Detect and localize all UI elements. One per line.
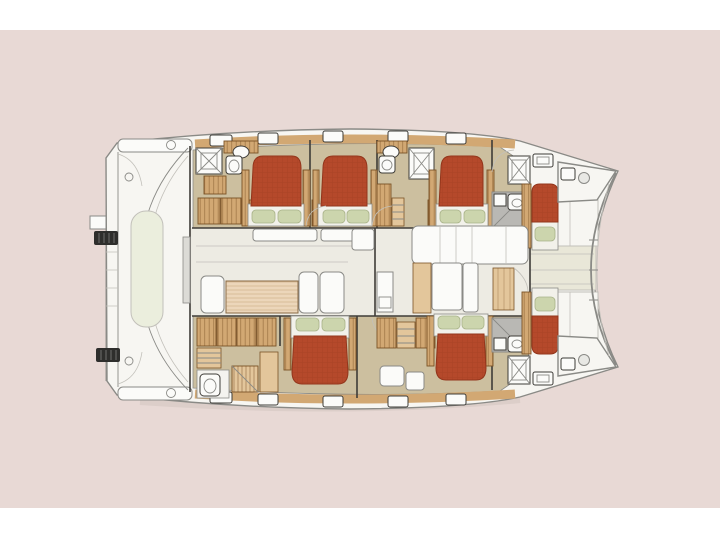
bed-duvet <box>292 336 348 384</box>
port-mid-cabin-bed <box>313 156 377 226</box>
starboard-side-deck-wood <box>195 394 515 399</box>
pillow <box>296 318 319 331</box>
pillow <box>278 210 301 223</box>
bed-rail <box>427 316 434 366</box>
berth-duvet <box>532 184 558 222</box>
bed-duvet <box>436 334 486 380</box>
berth-shelf <box>522 292 531 354</box>
shelf-unit <box>377 184 391 226</box>
cockpit-sliding-door <box>183 237 190 303</box>
galley-wood-counter <box>413 263 431 313</box>
toilet-icon <box>200 374 220 396</box>
galley-counter <box>377 272 393 312</box>
galley-island <box>432 263 462 310</box>
pillow <box>535 227 555 241</box>
galley-cabinet <box>352 229 374 250</box>
pillow <box>252 210 275 223</box>
salon-chaise <box>320 272 344 313</box>
open-shelves <box>397 322 415 348</box>
transom-step-starboard <box>118 387 192 400</box>
starboard-mid-cabin-bed <box>284 316 356 384</box>
companionway-steps <box>197 348 221 368</box>
anchor-hatch <box>561 168 575 180</box>
pillow <box>535 297 555 311</box>
stool <box>406 372 424 390</box>
bed-duvet <box>439 156 483 206</box>
cockpit-lounge-cushion <box>131 211 163 327</box>
pillow <box>462 316 484 329</box>
pillow <box>440 210 461 223</box>
bed-rail <box>349 318 356 370</box>
shower-stall <box>508 156 530 184</box>
pillow <box>323 210 345 223</box>
stern-locker <box>90 216 106 229</box>
anchor-hatch <box>561 358 575 370</box>
seat <box>380 366 404 386</box>
toilet-icon <box>379 156 395 173</box>
deck-hatch <box>533 372 553 385</box>
shower-stall <box>508 356 530 384</box>
deck-hatch <box>533 154 553 167</box>
transom-step-port <box>118 139 192 152</box>
stern-cleat-lower <box>96 348 120 362</box>
porthole-icon <box>579 173 590 184</box>
dinette-bench <box>299 272 318 313</box>
open-shelves <box>392 198 404 226</box>
pillow <box>322 318 345 331</box>
salon-bench-back <box>253 229 317 241</box>
pillow <box>438 316 460 329</box>
toilet-icon <box>226 156 242 174</box>
foredeck-center-panel <box>530 246 596 290</box>
storage-chest <box>204 176 226 194</box>
porthole-icon <box>579 355 590 366</box>
catamaran-floor-plan-image <box>0 0 720 539</box>
galley-unit <box>463 263 478 312</box>
berth-duvet <box>532 316 558 354</box>
dinette-table <box>226 281 298 313</box>
bed-rail <box>429 170 436 226</box>
sink-icon <box>494 194 506 206</box>
forward-settee <box>412 226 528 264</box>
shower-stall <box>196 148 222 174</box>
deck-plan-svg <box>0 0 720 539</box>
bed-duvet <box>321 156 367 206</box>
starboard-fwd-cabin-bed <box>427 314 493 380</box>
pillow <box>464 210 485 223</box>
vanity-unit <box>260 352 278 392</box>
foredeck-panel-lower <box>556 292 598 338</box>
ladder-grate <box>232 366 258 392</box>
bed-rail <box>284 318 291 370</box>
pillow <box>347 210 369 223</box>
dinette-bench <box>201 276 224 313</box>
stern-cleat-upper <box>94 231 118 245</box>
foredeck-panel-upper <box>556 200 598 246</box>
sink-icon <box>494 338 506 350</box>
bed-duvet <box>251 156 301 206</box>
